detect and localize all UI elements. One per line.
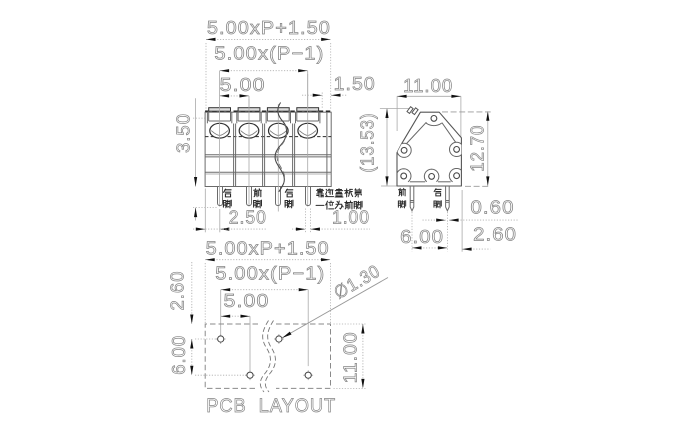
- svg-text:∅1.30: ∅1.30: [330, 261, 383, 303]
- svg-text:5.00xP+1.50: 5.00xP+1.50: [207, 17, 331, 38]
- svg-text:6.00: 6.00: [400, 226, 444, 247]
- svg-text:2.60: 2.60: [473, 224, 517, 245]
- svg-text:(13.53): (13.53): [356, 113, 377, 173]
- svg-text:PCB LAYOUT: PCB LAYOUT: [206, 395, 336, 417]
- svg-text:5.00xP+1.50: 5.00xP+1.50: [206, 238, 330, 259]
- svg-text:11.00: 11.00: [403, 75, 453, 96]
- svg-text:12.70: 12.70: [466, 125, 487, 172]
- svg-text:2.60: 2.60: [166, 271, 187, 311]
- svg-text:5.00x(P−1): 5.00x(P−1): [215, 262, 325, 283]
- svg-text:5.00: 5.00: [224, 290, 270, 311]
- svg-text:1.00: 1.00: [332, 206, 370, 227]
- svg-text:6.00: 6.00: [168, 335, 189, 375]
- svg-text:2.50: 2.50: [229, 206, 267, 227]
- svg-text:1.50: 1.50: [334, 73, 376, 94]
- svg-text:5.00x(P−1): 5.00x(P−1): [214, 42, 324, 63]
- svg-text:5.00: 5.00: [220, 74, 266, 95]
- svg-text:0.60: 0.60: [471, 196, 515, 217]
- svg-text:11.00: 11.00: [339, 331, 360, 383]
- svg-text:3.50: 3.50: [172, 113, 193, 153]
